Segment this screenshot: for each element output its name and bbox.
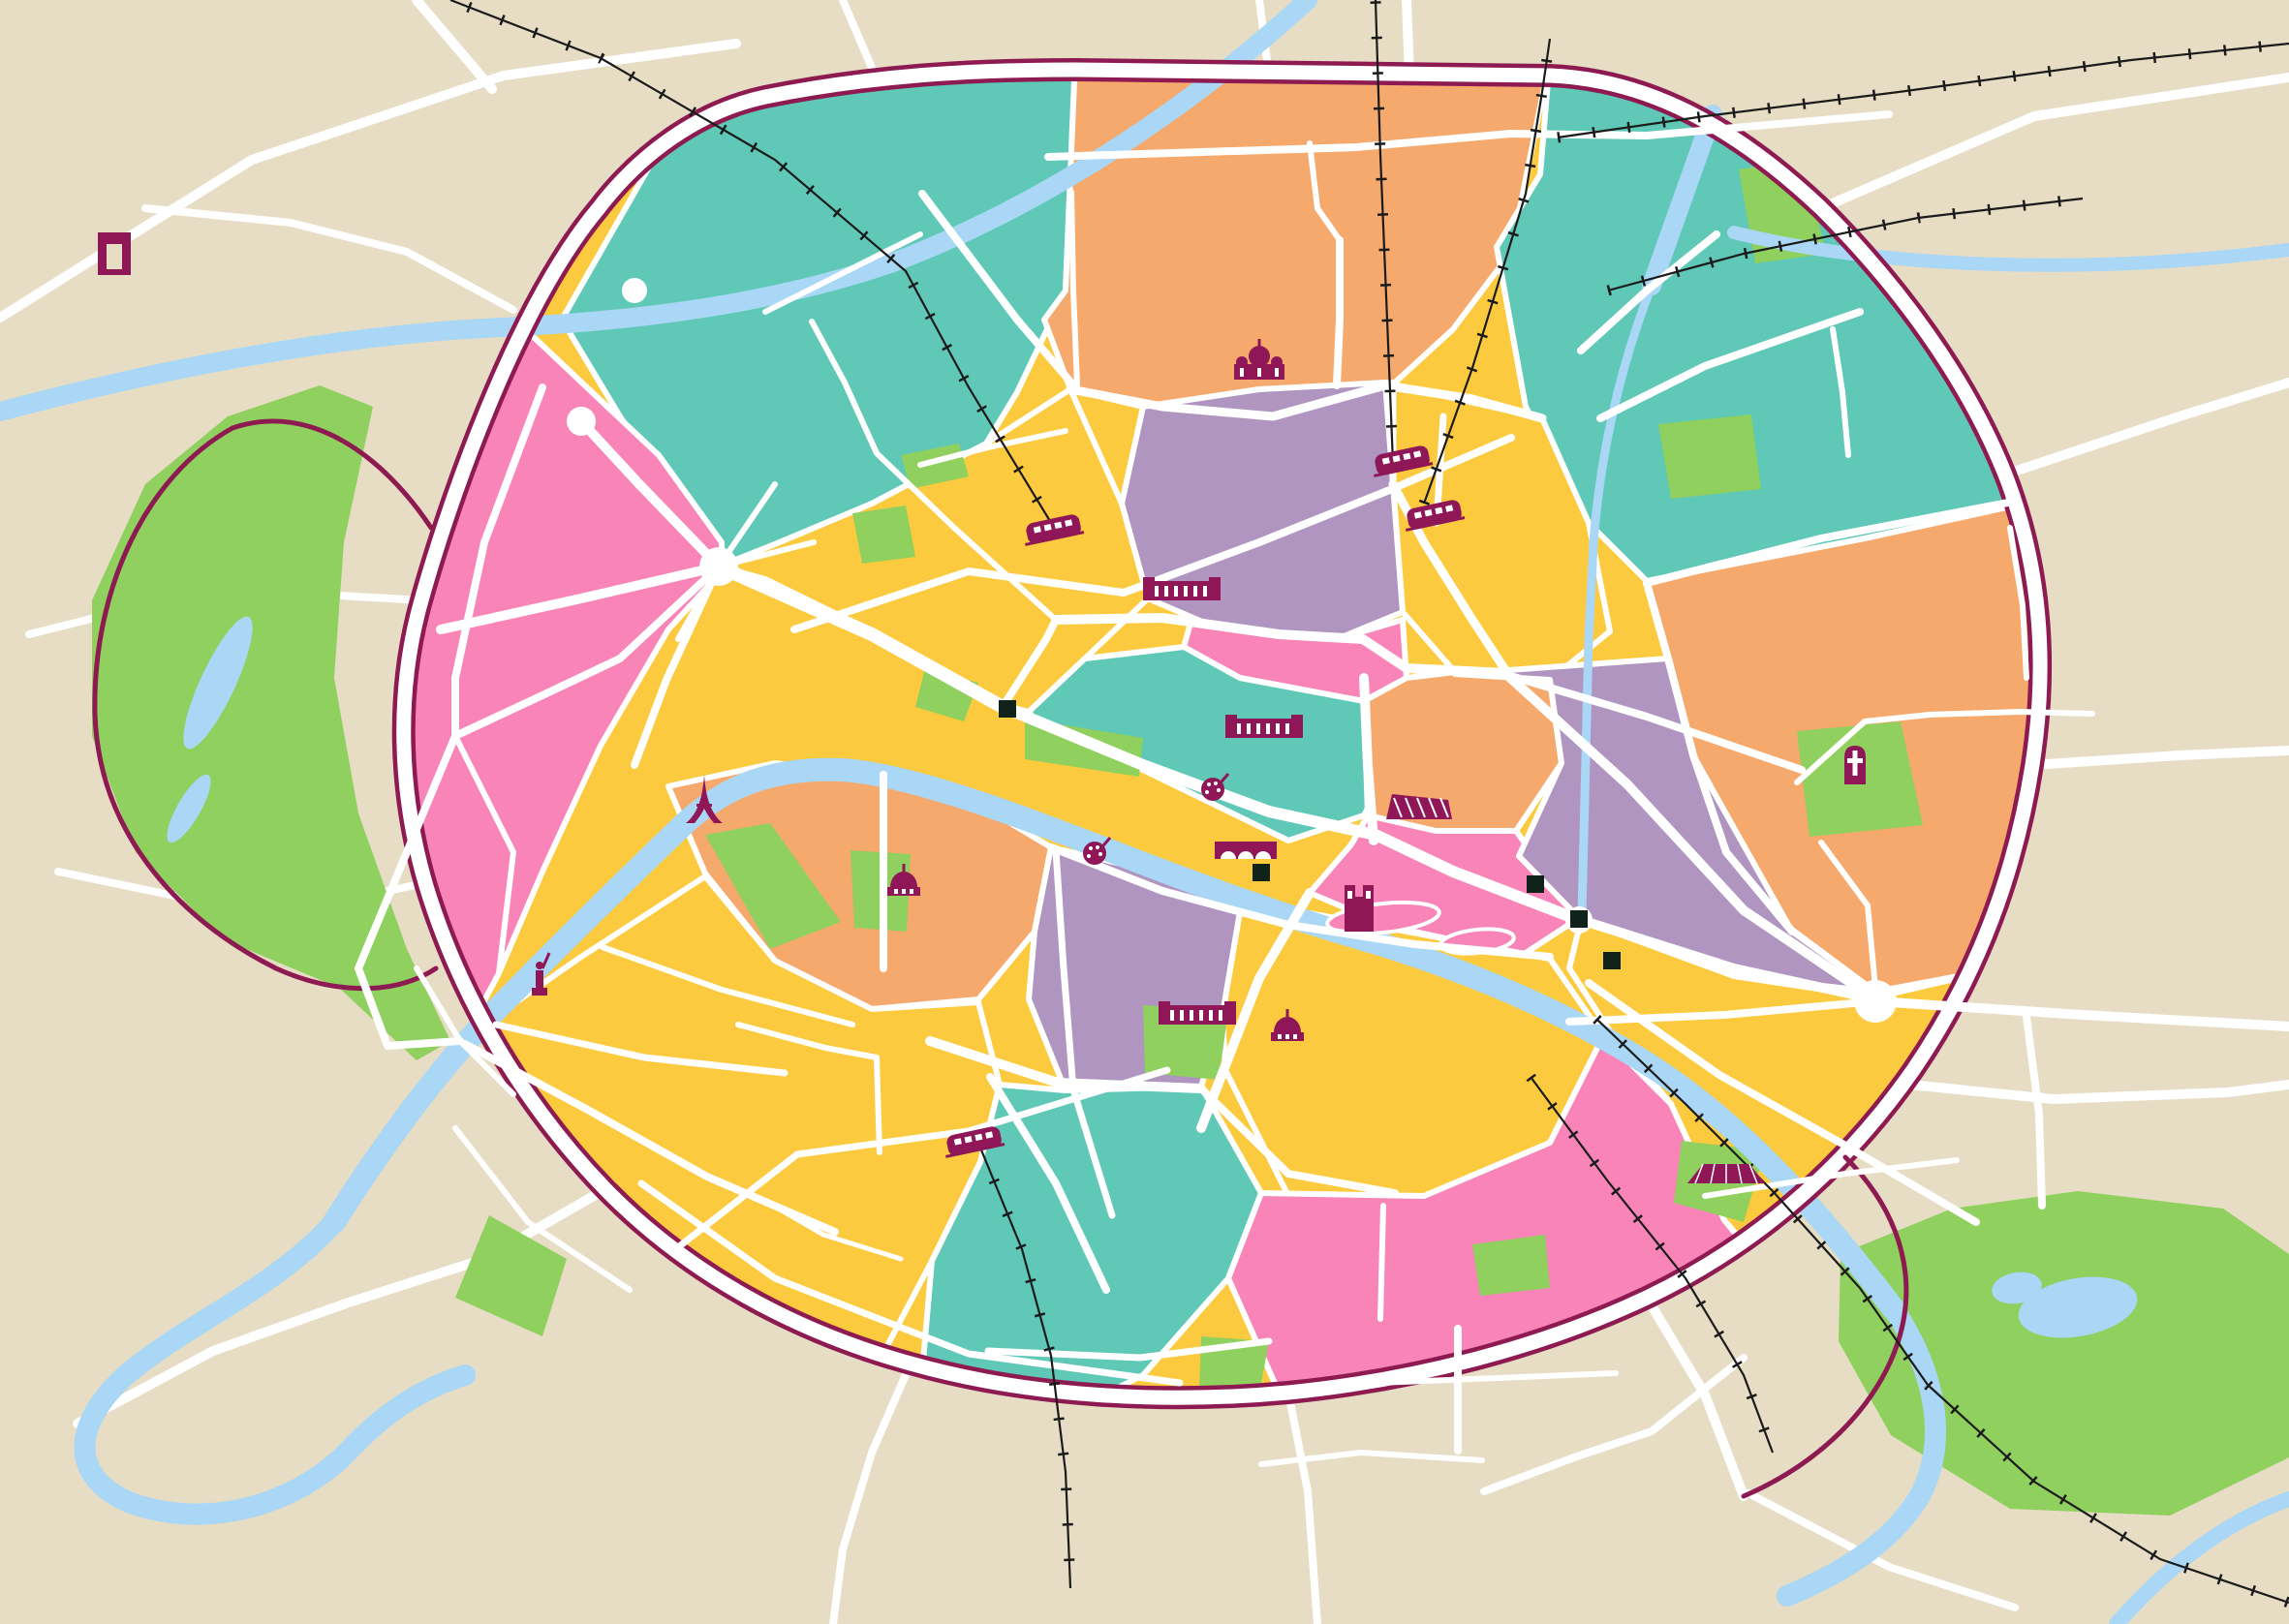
dome-lantern — [903, 864, 906, 872]
palace-wing-l — [1143, 577, 1155, 600]
dome-window — [1278, 1034, 1282, 1039]
palette-dot — [1205, 790, 1209, 794]
palace-wing-l — [1225, 715, 1237, 738]
palace-window — [1180, 1010, 1184, 1021]
dome-window — [894, 889, 898, 894]
dome-window — [910, 889, 913, 894]
roundabout-place-nation-circle — [1854, 980, 1897, 1023]
palace-window — [1209, 1010, 1213, 1021]
place-square-marker — [999, 700, 1016, 718]
window-l — [1347, 891, 1352, 899]
road-av-gobelins — [1380, 1206, 1383, 1319]
palace-window — [1285, 723, 1289, 734]
palace-window — [1174, 586, 1178, 597]
palace-window — [1155, 586, 1159, 597]
paris-arrondissements-map — [0, 0, 2289, 1624]
statue-body — [536, 970, 543, 988]
dome-lantern — [1286, 1009, 1289, 1017]
park-buttes-chaumont — [1658, 414, 1761, 499]
church-window — [1257, 368, 1261, 377]
palace-wing-l — [1159, 1001, 1170, 1025]
palace-window — [1219, 1010, 1222, 1021]
place-square-marker — [1527, 875, 1544, 893]
nave — [1355, 897, 1363, 932]
church-window — [1240, 368, 1244, 377]
roundabout-place-etoile — [699, 547, 738, 586]
palace-wing-r — [1209, 577, 1221, 600]
palace-wing-r — [1291, 715, 1303, 738]
paris-map-page — [0, 0, 2289, 1624]
dome-window — [902, 889, 906, 894]
palette-dot — [1217, 788, 1221, 792]
dome-window — [1293, 1034, 1297, 1039]
place-square-marker — [1603, 952, 1621, 969]
church-window — [1275, 368, 1279, 377]
landmark-icon-opera-bastille-icon — [1603, 952, 1621, 969]
arche-inner — [107, 244, 122, 269]
landmark-icon-pont-neuf-icon — [1215, 842, 1277, 859]
landmark-icon-place-des-vosges-icon — [1527, 875, 1544, 893]
road-bd-barbes — [1337, 240, 1340, 385]
church-dome-l — [1236, 356, 1248, 368]
church-spire — [1258, 339, 1261, 349]
palace-window — [1237, 723, 1241, 734]
palace-window — [1184, 586, 1188, 597]
region-9e — [1122, 383, 1403, 639]
palace-window — [1193, 586, 1197, 597]
roundabout-porte-champerret — [622, 278, 647, 303]
palace-window — [1190, 1010, 1193, 1021]
palace-window — [1276, 723, 1280, 734]
palace-window — [1199, 1010, 1203, 1021]
landmark-icon-arche-de-la-defense-icon — [98, 232, 131, 275]
landmark-icon-pere-lachaise-cross-icon — [1844, 746, 1866, 784]
eiffel-deck — [696, 804, 712, 807]
palette-dot — [1207, 782, 1211, 786]
road-r-belgrand — [1930, 712, 2092, 715]
palace-window — [1164, 586, 1168, 597]
window-r — [1366, 891, 1371, 899]
palace-window — [1256, 723, 1260, 734]
road-bd-pasteur — [877, 1057, 880, 1152]
palette-dot — [1089, 846, 1093, 850]
church-dome-r — [1271, 356, 1283, 368]
church-dome — [1249, 346, 1270, 367]
palette-dot — [1098, 852, 1102, 856]
statue-pedestal — [532, 988, 547, 996]
landmark-icon-place-de-la-bastille-icon — [1570, 910, 1588, 928]
palace-window — [1203, 586, 1207, 597]
palace-window — [1247, 723, 1251, 734]
cross-h — [1847, 758, 1863, 763]
place-square-marker — [1570, 910, 1588, 928]
palace-window — [1170, 1010, 1174, 1021]
landmark-icon-place-de-la-concorde-icon — [999, 700, 1016, 718]
landmark-icon-place-dauphine-icon — [1253, 864, 1270, 881]
park-green-13e — [1472, 1235, 1550, 1296]
place-square-marker — [1253, 864, 1270, 881]
roundabout-porte-maillot — [567, 407, 596, 436]
palace-window — [1266, 723, 1270, 734]
palette-dot — [1087, 854, 1091, 858]
palace-wing-r — [1224, 1001, 1236, 1025]
dome-window — [1285, 1034, 1289, 1039]
park-parc-monceau — [852, 506, 915, 564]
